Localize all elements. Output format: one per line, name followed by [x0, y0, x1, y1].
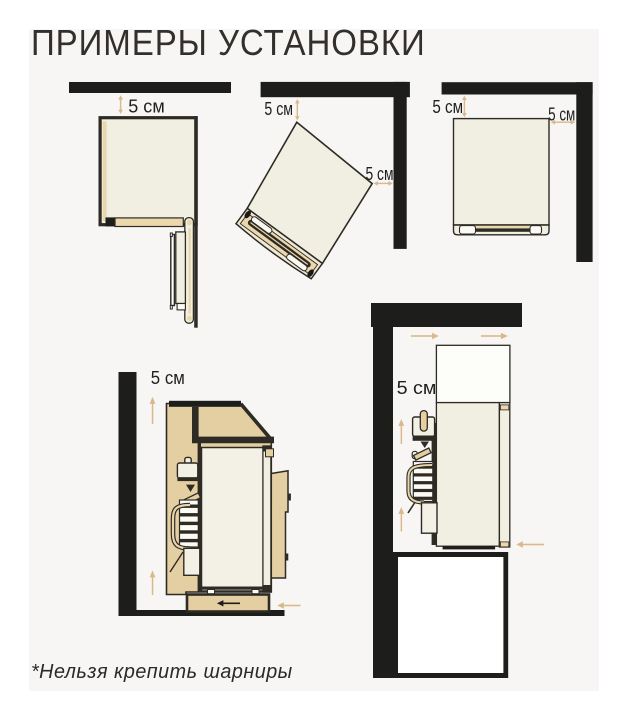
svg-text:5 см: 5 см — [432, 97, 463, 117]
svg-text:5 см: 5 см — [548, 104, 575, 124]
svg-text:5 см: 5 см — [397, 378, 437, 398]
svg-text:5 см: 5 см — [128, 97, 164, 117]
svg-text:5 см: 5 см — [264, 99, 293, 119]
svg-text:5 см: 5 см — [151, 368, 185, 388]
